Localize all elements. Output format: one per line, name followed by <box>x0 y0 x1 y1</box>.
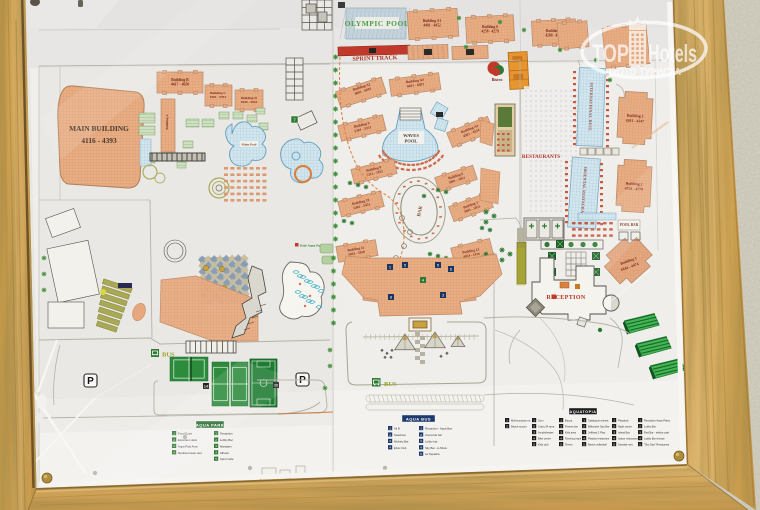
svg-text:Kids area: Kids area <box>565 431 577 435</box>
svg-text:Ali B.: Ali B. <box>394 427 401 431</box>
svg-text:Island Bar: Island Bar <box>618 431 630 435</box>
svg-text:Indoor restaurant: Indoor restaurant <box>618 437 638 441</box>
svg-text:Bocca: Bocca <box>565 419 573 423</box>
svg-text:P: P <box>299 375 306 386</box>
svg-text:Building A: Building A <box>165 114 169 130</box>
svg-text:Lobby bar: Lobby bar <box>425 439 438 443</box>
svg-text:Alfredo: Alfredo <box>220 451 229 455</box>
svg-text:Catalogue animat.: Catalogue animat. <box>588 419 609 423</box>
svg-text:Kids club: Kids club <box>538 443 549 447</box>
svg-text:OLYMPIC POOL: OLYMPIC POOL <box>345 19 410 28</box>
svg-text:4417 - 4650: 4417 - 4650 <box>171 83 189 87</box>
svg-text:Playduck: Playduck <box>618 419 629 423</box>
svg-text:WAVES: WAVES <box>403 133 419 138</box>
svg-text:"Sky Star" Restaurant: "Sky Star" Restaurant <box>644 443 669 447</box>
svg-text:Running track: Running track <box>565 437 582 441</box>
svg-text:Main Pool: Main Pool <box>242 143 257 147</box>
svg-text:P: P <box>87 376 94 387</box>
svg-text:Building B: Building B <box>171 78 189 82</box>
svg-text:Amphitheater: Amphitheater <box>538 431 554 435</box>
svg-text:Gym: Gym <box>538 419 543 423</box>
svg-text:Michely Bar: Michely Bar <box>394 439 409 443</box>
svg-text:Bistro: Bistro <box>492 77 503 82</box>
svg-text:Beach volleyball: Beach volleyball <box>588 443 607 447</box>
svg-text:Reception - Aqua Bus: Reception - Aqua Bus <box>425 427 453 431</box>
svg-text:Crazy 54 area: Crazy 54 area <box>538 425 555 429</box>
svg-text:Elvis Club: Elvis Club <box>394 446 407 450</box>
svg-text:ФОТО ТУРИСТА: ФОТО ТУРИСТА <box>609 66 681 78</box>
svg-text:Beach soccer: Beach soccer <box>511 425 527 429</box>
svg-text:Lobby Bar: Lobby Bar <box>220 438 233 442</box>
svg-text:Building 6: Building 6 <box>482 25 498 29</box>
svg-text:Laddy Bar terrace: Laddy Bar terrace <box>644 437 665 441</box>
svg-text:La Squadra: La Squadra <box>425 452 440 456</box>
svg-text:Concorde bar: Concorde bar <box>425 433 442 437</box>
svg-text:Fitness bar: Fitness bar <box>565 425 578 429</box>
svg-text:Bike centre: Bike centre <box>538 437 552 441</box>
svg-text:Reception-Aqua Plaza: Reception-Aqua Plaza <box>644 419 670 423</box>
svg-text:Lobby Bar: Lobby Bar <box>644 425 656 429</box>
svg-text:5501 - 5551: 5501 - 5551 <box>210 95 227 99</box>
svg-text:Multi-purpose crt: Multi-purpose crt <box>511 419 531 423</box>
svg-text:Sport Cafe: Sport Cafe <box>220 457 234 461</box>
svg-text:4258 - 4279: 4258 - 4279 <box>481 29 499 33</box>
svg-text:Playbar restaurant: Playbar restaurant <box>588 437 609 441</box>
svg-text:Jeffbeat 2 Play: Jeffbeat 2 Play <box>588 431 606 435</box>
svg-text:Night centre: Night centre <box>618 425 633 429</box>
svg-text:AQUATOPIA: AQUATOPIA <box>570 410 597 414</box>
svg-text:TOP: TOP <box>592 40 629 68</box>
svg-text:BUS: BUS <box>384 381 397 388</box>
svg-text:Billionaire Sprt Bar: Billionaire Sprt Bar <box>588 425 610 429</box>
svg-text:5650 - 5944: 5650 - 5944 <box>241 100 258 104</box>
svg-text:RESTAURANTS: RESTAURANTS <box>522 154 560 160</box>
svg-text:Tennis: Tennis <box>565 443 573 447</box>
svg-text:POOL: POOL <box>404 139 417 144</box>
svg-text:Seaside rest.: Seaside rest. <box>618 443 633 447</box>
svg-text:AQUA BUS: AQUA BUS <box>406 416 431 421</box>
svg-text:Seashore: Seashore <box>394 433 406 437</box>
svg-text:4401 - 4452: 4401 - 4452 <box>423 23 441 27</box>
svg-text:Red Bar - shisha cafe: Red Bar - shisha cafe <box>644 431 669 435</box>
svg-text:Mandarin: Mandarin <box>220 444 232 448</box>
svg-text:Hotels: Hotels <box>648 40 697 68</box>
svg-text:Building A1: Building A1 <box>423 19 441 23</box>
svg-text:Sky Bar - A-Show: Sky Bar - A-Show <box>425 446 448 450</box>
